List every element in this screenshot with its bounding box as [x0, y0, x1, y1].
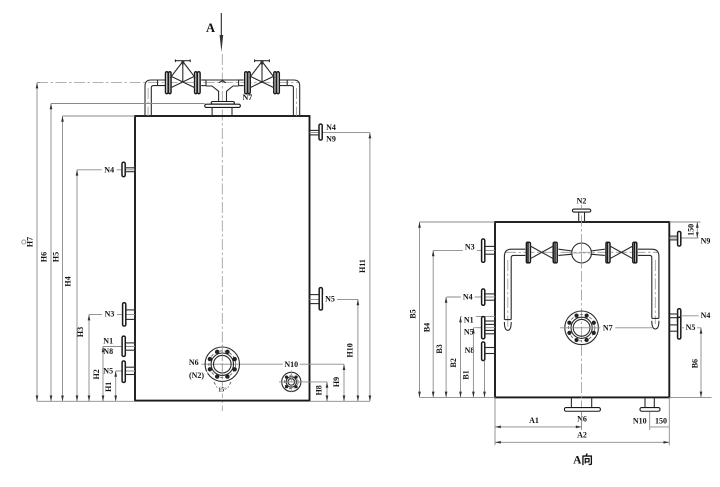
svg-text:N5: N5	[103, 366, 113, 375]
svg-text:A向: A向	[573, 453, 593, 467]
svg-text:B2: B2	[449, 358, 458, 367]
svg-text:A2: A2	[577, 430, 587, 439]
svg-text:(N2): (N2)	[189, 371, 204, 380]
svg-text:H7: H7	[25, 237, 34, 247]
svg-text:B5: B5	[409, 309, 418, 318]
svg-text:H10: H10	[346, 343, 355, 357]
svg-text:N6: N6	[189, 358, 199, 367]
svg-text:150: 150	[655, 417, 667, 426]
svg-text:N5: N5	[686, 323, 696, 332]
svg-text:N2: N2	[577, 197, 587, 206]
svg-text:H6: H6	[40, 252, 49, 262]
svg-text:A1: A1	[529, 416, 539, 425]
svg-text:N5: N5	[325, 295, 335, 304]
svg-text:N4: N4	[326, 123, 336, 132]
svg-text:N9: N9	[326, 135, 336, 144]
svg-text:N1: N1	[103, 337, 113, 346]
svg-text:N10: N10	[633, 416, 647, 425]
svg-text:N5: N5	[464, 327, 474, 336]
svg-text:N8: N8	[103, 347, 113, 356]
svg-text:H11: H11	[358, 259, 367, 273]
svg-text:N10: N10	[284, 360, 298, 369]
svg-text:H5: H5	[52, 252, 61, 262]
svg-text:H1: H1	[104, 382, 113, 392]
svg-text:150: 150	[687, 224, 696, 236]
svg-text:N4: N4	[701, 311, 711, 320]
svg-text:B4: B4	[422, 323, 431, 332]
svg-text:N9: N9	[701, 237, 711, 246]
svg-text:B6: B6	[690, 359, 699, 368]
svg-text:N7: N7	[243, 93, 253, 102]
svg-text:H2: H2	[92, 369, 101, 379]
svg-text:A: A	[206, 21, 215, 35]
svg-text:B1: B1	[462, 370, 471, 379]
svg-text:H3: H3	[76, 327, 85, 337]
svg-text:H9: H9	[332, 377, 341, 387]
svg-text:N1: N1	[464, 315, 474, 324]
svg-text:N4: N4	[463, 292, 473, 301]
svg-text:B3: B3	[435, 344, 444, 353]
svg-text:N3: N3	[465, 243, 475, 252]
svg-text:N3: N3	[105, 309, 115, 318]
svg-text:N8: N8	[465, 346, 475, 355]
svg-text:H8: H8	[314, 385, 323, 395]
svg-text:15°: 15°	[218, 387, 227, 394]
svg-text:N7: N7	[603, 324, 613, 333]
svg-text:H4: H4	[64, 276, 73, 286]
svg-text:N4: N4	[104, 165, 114, 174]
